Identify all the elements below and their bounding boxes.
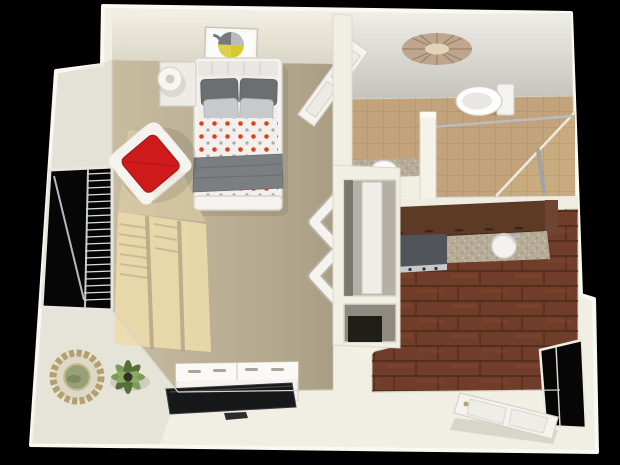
nightstand bbox=[158, 62, 196, 106]
cabinet-end-panel bbox=[545, 200, 558, 236]
niche-shadow bbox=[344, 180, 353, 296]
floorplan-stage bbox=[0, 0, 620, 465]
sunburst-mirror bbox=[53, 353, 101, 401]
toilet-seat bbox=[462, 93, 492, 110]
lamp-finial bbox=[166, 75, 175, 84]
window-glass bbox=[42, 167, 112, 310]
lower-niche-dark bbox=[348, 316, 382, 342]
closet-door-slab bbox=[362, 182, 382, 294]
ceiling-medallion bbox=[402, 33, 472, 65]
closet-column bbox=[333, 165, 400, 362]
bed bbox=[193, 58, 288, 216]
faucet bbox=[514, 235, 520, 238]
floorplan-svg bbox=[0, 0, 620, 465]
footboard bbox=[194, 196, 282, 210]
half-wall-cap bbox=[420, 112, 436, 118]
west-wall-face bbox=[50, 60, 112, 172]
door-knob bbox=[464, 402, 469, 407]
mirror-reflection bbox=[67, 375, 81, 383]
half-wall bbox=[420, 112, 436, 200]
kitchen-counter bbox=[447, 231, 550, 263]
throw-blanket bbox=[193, 154, 283, 192]
window bbox=[42, 167, 112, 310]
plant-center bbox=[124, 373, 133, 382]
medallion-center bbox=[425, 44, 449, 55]
headboard bbox=[198, 61, 278, 76]
